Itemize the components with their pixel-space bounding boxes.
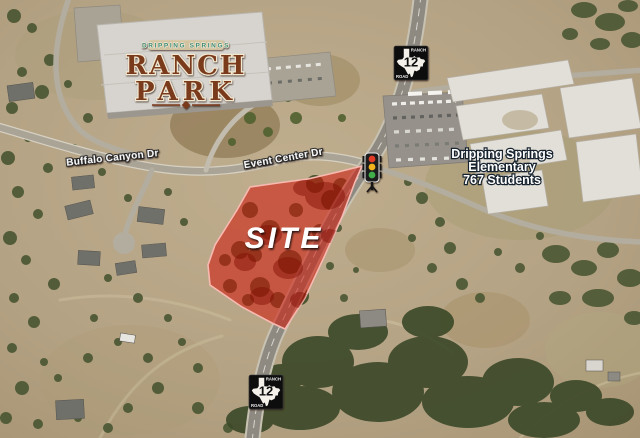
shield-top-text: RANCH [411,48,426,53]
aerial-map-canvas: Buffalo Canyon Dr Event Center Dr SITE D… [0,0,640,438]
shield-bottom-text: ROAD [396,74,408,79]
aerial-site-map: Buffalo Canyon Dr Event Center Dr SITE D… [0,0,640,438]
texas-route-shield-icon: 12 RANCH ROAD [249,375,283,409]
shield-number: 12 [259,384,273,399]
shield-top-text: RANCH [266,377,281,382]
ranch-park-logo: DRIPPING SPRINGS RANCH PARK [126,40,247,109]
shield-bottom-text: ROAD [251,403,263,408]
school-label-line1: Dripping Springs [451,147,552,161]
shield-number: 12 [404,55,418,70]
texas-route-shield-icon: 12 RANCH ROAD [394,46,428,80]
school-label-line2: Elementary [468,160,535,174]
site-label: SITE [245,222,324,255]
school-label-line3: 767 Students [463,173,541,187]
logo-banner-text: DRIPPING SPRINGS [142,43,230,50]
